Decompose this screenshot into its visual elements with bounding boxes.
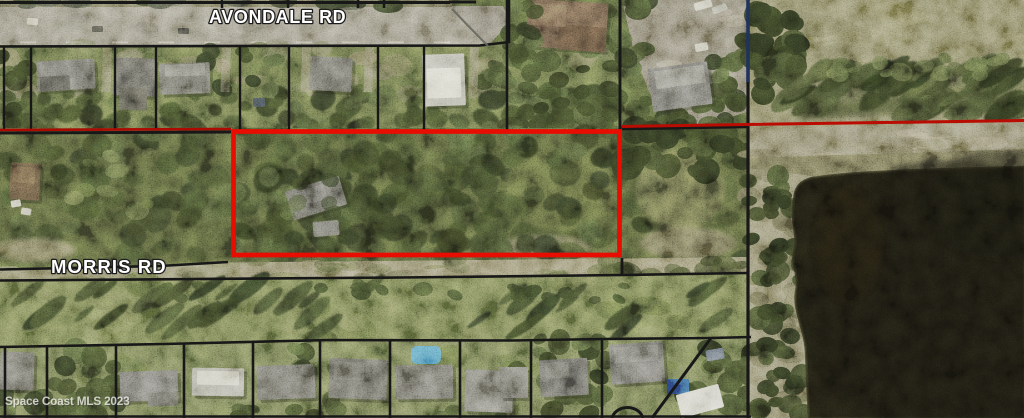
svg-text:MORRIS RD: MORRIS RD [51, 256, 167, 277]
svg-text:Space Coast MLS 2023: Space Coast MLS 2023 [5, 394, 130, 408]
svg-text:AVONDALE RD: AVONDALE RD [209, 7, 346, 27]
